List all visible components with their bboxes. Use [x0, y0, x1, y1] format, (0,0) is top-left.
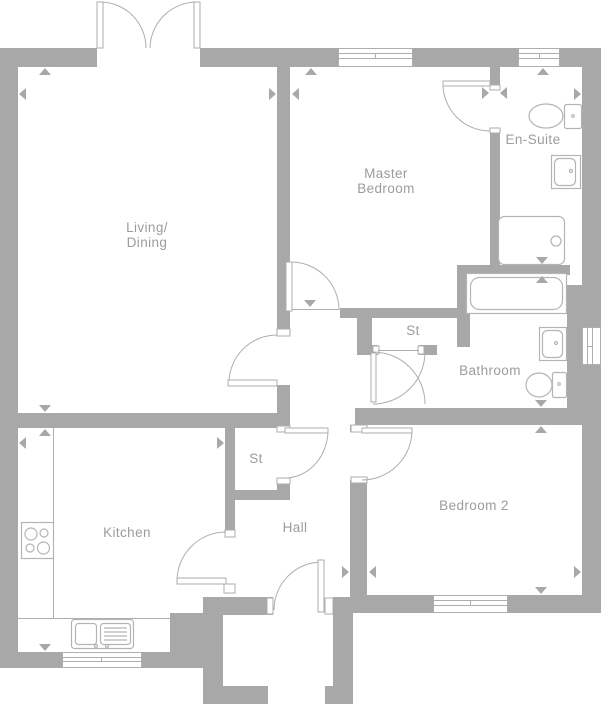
room-label-bedroom2: Bedroom 2 [439, 498, 509, 513]
door-leaf [362, 428, 412, 433]
wall-segment [325, 686, 353, 704]
room-label-hall: Hall [283, 520, 308, 535]
door-jamb [490, 128, 500, 133]
wall-segment [0, 652, 62, 668]
door-jamb [277, 329, 290, 336]
door-leaf [285, 428, 328, 433]
wall-segment [200, 48, 338, 67]
room-label-storage-lower: St [249, 451, 263, 466]
wall-segment [582, 365, 601, 613]
room-label-storage-upper: St [406, 323, 420, 338]
ensuite-toilet-icon [529, 104, 582, 129]
bathtub-icon [467, 274, 567, 314]
wall-segment [0, 413, 290, 428]
window-bedroom2 [434, 596, 508, 613]
ensuite-basin-icon [552, 156, 581, 189]
door-leaf [318, 560, 324, 612]
wall-segment [0, 48, 18, 668]
wall-segment [508, 595, 601, 613]
wall-segment [235, 490, 290, 500]
window-bathroom [583, 328, 601, 365]
door-jamb [325, 598, 333, 614]
hob-icon [22, 523, 54, 559]
door-leaf [286, 262, 292, 311]
door-jamb [490, 85, 500, 90]
door-jamb [225, 530, 235, 537]
wall-segment [355, 408, 601, 425]
room-label-master-bedroom-line2: Bedroom [357, 181, 415, 196]
wall-segment [350, 480, 367, 613]
door-leaf [177, 578, 226, 584]
wall-segment [225, 428, 235, 537]
room-label-master-bedroom-line1: Master [364, 166, 408, 181]
room-label-kitchen: Kitchen [103, 525, 151, 540]
floor-plan: Living/ Dining Master Bedroom En-Suite S… [0, 0, 601, 704]
wall-segment [413, 48, 518, 67]
door-jamb [277, 478, 290, 484]
window-master-bedroom [339, 49, 413, 67]
door-leaf [194, 2, 200, 48]
door-jamb [224, 584, 235, 593]
wall-segment [582, 48, 601, 327]
door-leaf [443, 81, 490, 86]
wall-segment [567, 285, 582, 408]
wall-segment [203, 686, 268, 704]
window-ensuite [519, 49, 560, 67]
room-label-living-dining-line2: Dining [127, 235, 168, 250]
bathroom-basin-icon [540, 328, 567, 361]
room-label-living-dining-line1: Living/ [126, 220, 168, 235]
wall-segment [490, 67, 500, 85]
room-label-bathroom: Bathroom [459, 363, 521, 378]
door-leaf [228, 380, 277, 386]
door-jamb [267, 598, 273, 614]
window-kitchen [63, 653, 142, 668]
bathroom-toilet-icon [526, 373, 567, 398]
door-leaf [371, 353, 376, 402]
door-leaf [97, 2, 103, 48]
room-label-ensuite: En-Suite [506, 132, 561, 147]
kitchen-sink-icon [72, 620, 134, 649]
wall-segment [340, 308, 457, 318]
shower-tray-icon [499, 217, 565, 265]
